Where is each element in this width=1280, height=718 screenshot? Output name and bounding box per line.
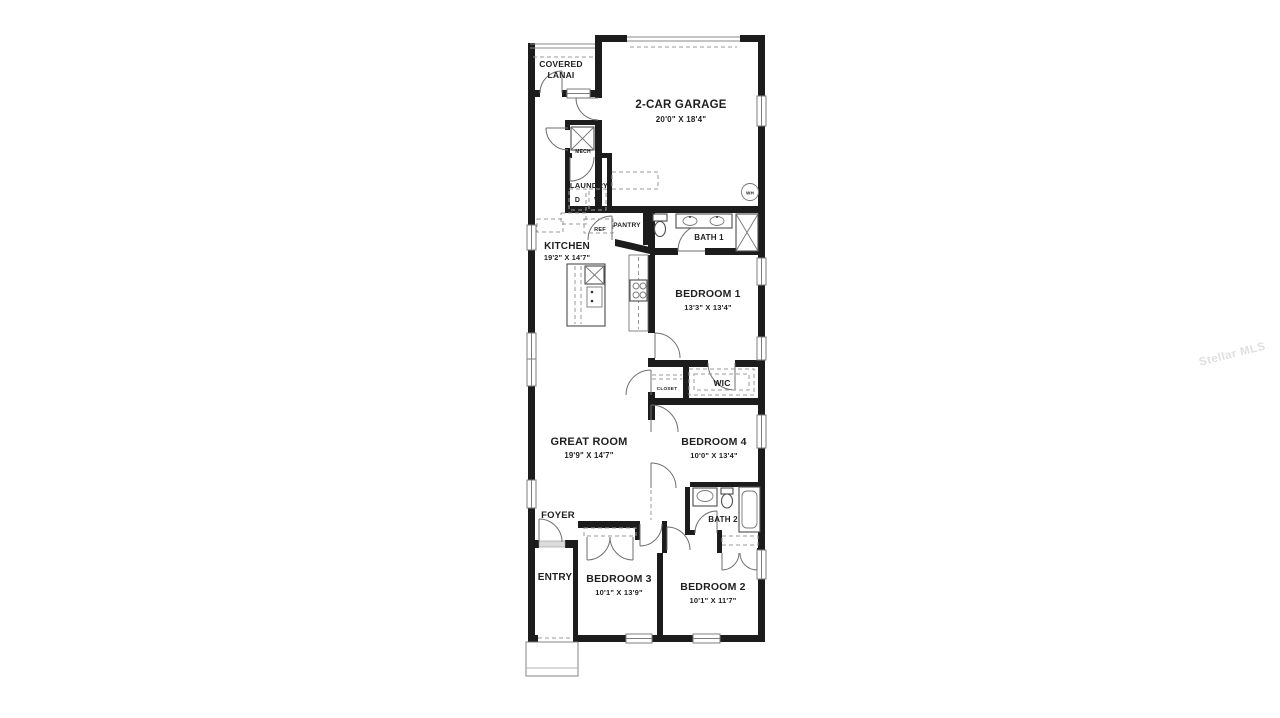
wall-segment [528, 43, 535, 225]
kitchen-dims: 19'2" X 14'7" [544, 253, 590, 262]
wall-segment [758, 360, 765, 415]
wall-segment [758, 42, 765, 96]
mech-label: MECH [575, 149, 591, 155]
window [757, 337, 766, 360]
window [527, 225, 536, 250]
wall-segment [533, 540, 539, 548]
wall-segment [690, 482, 765, 487]
lanai-open-edge [530, 44, 595, 57]
bath2-bathtub-icon [739, 487, 760, 532]
wall-segment [562, 90, 567, 97]
wall-segment [690, 530, 695, 535]
laundry-label: LAUNDRY [570, 181, 608, 190]
wall-segment [758, 126, 765, 258]
exterior-walls [528, 35, 765, 642]
wall-segment [595, 122, 602, 206]
window [757, 96, 766, 126]
kitchen-island [567, 264, 605, 326]
window [757, 415, 766, 448]
bedroom1-dims: 13'3" X 13'4" [684, 303, 732, 312]
wall-segment [565, 153, 572, 158]
hall-closet-door [626, 370, 651, 395]
window [527, 333, 536, 386]
kitchen-counter [561, 213, 586, 224]
bedroom4-door [651, 405, 678, 432]
wall-segment [683, 367, 689, 398]
wall-segment [528, 508, 535, 642]
wall-segment [578, 521, 640, 528]
bedroom2-dims: 10'1" X 11'7" [689, 596, 736, 605]
entry-label: ENTRY [538, 572, 573, 583]
wall-segment [662, 521, 667, 547]
bedroom3-dims: 10'1" X 13'9" [595, 588, 643, 597]
bedroom3-door [640, 524, 662, 546]
bedroom3-closet-rod [584, 528, 636, 536]
wall-segment [648, 360, 708, 367]
wall-segment [657, 553, 663, 635]
garage-dims: 20'0" X 18'4" [656, 115, 706, 124]
wall-segment [528, 635, 538, 642]
mech-door [546, 128, 568, 150]
bedroom1-door [655, 333, 680, 358]
bedroom4-dims: 10'0" X 13'4" [690, 451, 738, 460]
bedroom2-closet-rod [722, 536, 758, 545]
ref-label: REF [594, 227, 606, 233]
wall-segment [596, 153, 612, 158]
bedroom3-closet-doors [587, 537, 633, 560]
hall-closet-shelf [652, 375, 682, 379]
closet-label: CLOSET [657, 386, 678, 392]
wall-segment [648, 398, 765, 405]
washer-label: W [594, 197, 601, 204]
wall-segment [735, 360, 765, 367]
garage-workbench [612, 172, 658, 189]
windows [527, 89, 766, 643]
kitchen-counter [537, 219, 563, 232]
wall-segment [528, 386, 535, 480]
mech-chase-icon [571, 127, 594, 150]
garage-side-door [576, 98, 598, 120]
wall-segment [720, 635, 765, 642]
window [527, 480, 536, 508]
wall-segment [740, 35, 765, 42]
wall-segment [573, 635, 626, 642]
wall-segment [685, 487, 690, 535]
bedroom4-label: BEDROOM 4 [681, 436, 746, 448]
wall-segment [662, 547, 667, 553]
wall-segment [717, 548, 722, 553]
wall-segment [652, 635, 693, 642]
water-heater-label: WH [746, 191, 755, 196]
entry-porch [526, 642, 578, 676]
bedroom3-label: BEDROOM 3 [586, 573, 651, 585]
great-room-label: GREAT ROOM [551, 436, 628, 448]
wall-segment [650, 248, 678, 255]
window [757, 258, 766, 285]
laundry-door [570, 157, 594, 181]
foyer-label: FOYER [541, 510, 575, 521]
kitchen-label: KITCHEN [544, 241, 590, 252]
wall-segment [528, 250, 535, 333]
cooktop-counter [629, 255, 648, 331]
bath1-toilet-icon [653, 214, 667, 237]
floor-plan-page: COVERED LANAI 2-CAR GARAGE 20'0" X 18'4"… [0, 0, 1280, 718]
front-door [539, 519, 565, 547]
wall-segment [717, 530, 722, 548]
wall-segment [565, 120, 602, 125]
bedroom2-label: BEDROOM 2 [680, 581, 745, 593]
lanai-label-line1: COVERED [539, 59, 582, 69]
wall-segment [758, 285, 765, 337]
bath2-toilet-icon [721, 488, 733, 508]
wall-segment [573, 540, 578, 635]
bath1-shower-icon [736, 214, 758, 251]
bedroom2-closet-doors [722, 553, 757, 570]
wall-segment [590, 90, 602, 97]
dryer-label: D [575, 197, 580, 204]
bedroom1-label: BEDROOM 1 [675, 288, 740, 300]
wall-segment [528, 90, 540, 97]
window [757, 550, 766, 579]
bath2-sink-icon [693, 488, 717, 506]
window [626, 634, 652, 643]
hall-door [651, 463, 676, 488]
great-room-dims: 19'9" X 14'7" [564, 451, 613, 460]
wall-segment [595, 35, 627, 42]
wall-segment [595, 42, 602, 98]
garage-door-opening [627, 37, 740, 47]
pantry-label: PANTRY [613, 222, 641, 229]
wic-label: WIC [713, 378, 730, 388]
window [693, 634, 720, 643]
bath1-double-vanity [676, 214, 732, 228]
wall-segment [758, 579, 765, 642]
room-labels: COVERED LANAI 2-CAR GARAGE 20'0" X 18'4"… [538, 59, 755, 605]
lanai-label-line2: LANAI [548, 70, 575, 80]
garage-label: 2-CAR GARAGE [635, 99, 726, 111]
wall-segment [648, 255, 655, 333]
window [567, 89, 590, 98]
bath2-label: BATH 2 [708, 515, 738, 524]
bath1-label: BATH 1 [694, 233, 724, 242]
floor-plan-drawing: COVERED LANAI 2-CAR GARAGE 20'0" X 18'4"… [0, 0, 1280, 718]
wall-segment [635, 521, 640, 540]
